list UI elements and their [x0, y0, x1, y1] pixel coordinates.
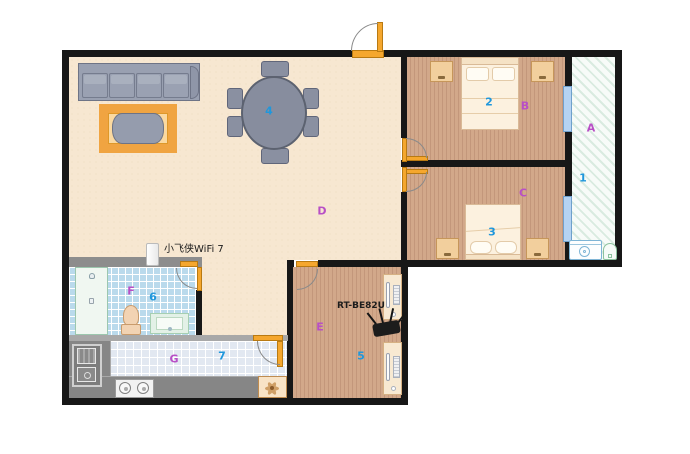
sink-drain [84, 372, 91, 379]
keyboard-icon [393, 356, 400, 378]
coffee-table [112, 113, 164, 144]
bathroom-vanity [150, 313, 189, 334]
room-number-bathroom: 6 [149, 292, 157, 303]
shower-head-icon [89, 273, 95, 279]
sink-drainboard [77, 348, 96, 364]
wall-study-top-b [318, 260, 408, 267]
blanket-line [462, 113, 518, 114]
router-label: RT-BE82U [337, 301, 385, 311]
wall-balcony-right [615, 50, 622, 267]
bed-pillow [470, 241, 492, 254]
balcony-floor [572, 57, 615, 260]
floor-plan: A 1 B 2 C 3 D 4 E 5 F 6 G 7 小飞侠WiFi 7 RT… [0, 0, 690, 454]
sofa-cushion [82, 73, 108, 98]
dining-chair [261, 61, 289, 77]
window-bedroomC-balcony [563, 196, 572, 242]
desk-mouse-icon [391, 386, 396, 391]
sofa-back-pillow [84, 75, 106, 84]
mesh-node-device [146, 243, 159, 266]
washing-machine [569, 240, 602, 260]
bed-headboard [462, 58, 518, 65]
mesh-node-label: 小飞侠WiFi 7 [164, 240, 224, 255]
dining-chair [261, 148, 289, 164]
shower-stall [75, 267, 108, 335]
stove-burner-center [142, 387, 146, 391]
room-label-bedroomB: B [521, 101, 529, 112]
sofa-armrest [190, 66, 199, 99]
room-number-balcony: 1 [579, 173, 587, 184]
mop-basin [603, 243, 617, 260]
sofa-cushion [163, 73, 189, 98]
window-bedroomB-balcony [563, 86, 572, 132]
sofa-cushion [136, 73, 162, 98]
stove-burner [119, 382, 131, 394]
toilet-tank [121, 324, 141, 335]
room-label-kitchen: G [169, 354, 178, 365]
wall-left [62, 50, 69, 405]
room-number-bedroomB: 2 [485, 97, 493, 108]
washing-machine-top-line [570, 244, 601, 245]
computer-desk [383, 342, 402, 395]
room-label-living: D [317, 206, 326, 217]
room-label-study: E [316, 322, 324, 333]
bed-headboard [466, 254, 520, 259]
sofa-back-pillow [138, 75, 160, 84]
nightstand [526, 238, 549, 259]
entry-door-swing-arc [351, 23, 378, 51]
bathroom-door-panel [197, 267, 202, 291]
bathroom-door-lintel [180, 261, 198, 267]
nightstand [430, 61, 453, 82]
sink-basin [77, 367, 96, 382]
kitchen-sink-unit [72, 344, 102, 387]
bed-pillow [495, 241, 517, 254]
wall-bottom-bedrooms [401, 260, 622, 267]
hallway-floor [202, 260, 287, 341]
monitor-icon [386, 282, 390, 308]
mop-basin-drain [608, 254, 612, 258]
wall-living-bedroomB [401, 57, 407, 138]
room-number-living: 4 [265, 106, 273, 117]
sofa-back-pillow [111, 75, 133, 84]
wall-bathroom-right [196, 290, 202, 335]
wall-living-bedroomC [401, 192, 407, 260]
stove-burner-center [124, 387, 128, 391]
sofa-back-pillow [165, 75, 187, 84]
wall-bedroomB-bedroomC [401, 160, 572, 167]
monitor-icon [386, 353, 390, 381]
wall-bottom [62, 398, 408, 405]
study-door-panel [296, 261, 318, 267]
washing-machine-drum [579, 246, 590, 257]
wall-top [62, 50, 622, 57]
vanity-faucet [168, 327, 172, 331]
room-label-bathroom: F [127, 286, 135, 297]
toilet [123, 305, 139, 326]
wifi-router [370, 308, 404, 340]
sofa-cushion [109, 73, 135, 98]
washing-machine-drum-center [583, 250, 586, 253]
floor-drain-icon [89, 298, 94, 304]
keyboard-icon [393, 285, 400, 305]
wall-study-left [287, 260, 293, 405]
room-label-balcony: A [587, 123, 596, 134]
room-number-study: 5 [357, 351, 365, 362]
stove [115, 379, 154, 398]
nightstand [531, 61, 554, 82]
room-number-kitchen: 7 [218, 351, 226, 362]
sofa [78, 63, 200, 101]
bed-pillow [492, 67, 515, 81]
room-label-bedroomC: C [519, 188, 527, 199]
stove-burner [137, 382, 149, 394]
bed-double [461, 57, 519, 130]
wall-kitchen-top-b [283, 335, 288, 341]
room-number-bedroomC: 3 [488, 227, 496, 238]
bed-pillow [466, 67, 489, 81]
nightstand [436, 238, 459, 259]
fridge-fan-center [270, 386, 274, 390]
refrigerator [258, 376, 287, 398]
dining-table [241, 76, 307, 150]
